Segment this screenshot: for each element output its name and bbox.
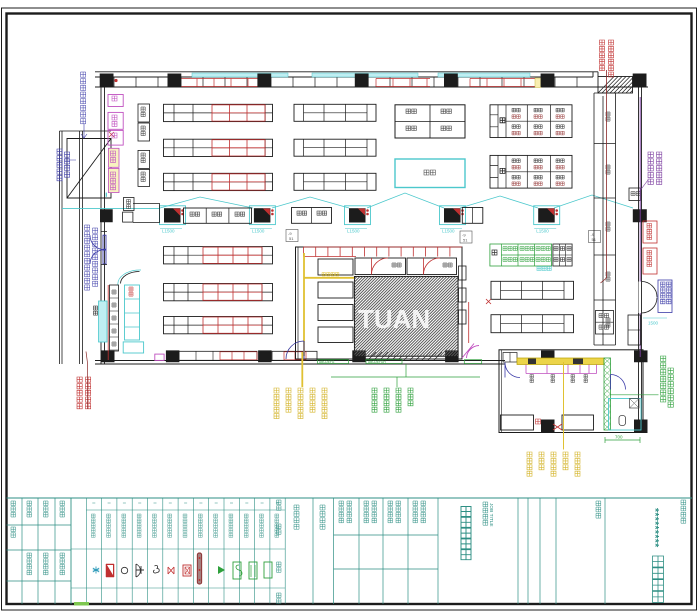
svg-text:*********: ********* — [649, 508, 661, 548]
svg-text:1500: 1500 — [648, 321, 659, 326]
svg-text:L1500: L1500 — [536, 229, 549, 234]
svg-text:TUAN: TUAN — [358, 304, 430, 334]
svg-text:51: 51 — [289, 236, 294, 241]
svg-text:L1500: L1500 — [347, 229, 360, 234]
svg-text:L1500: L1500 — [162, 229, 175, 234]
svg-text:ABCDEFG: ABCDEFG — [319, 360, 335, 364]
svg-text:JOB TITLE: JOB TITLE — [488, 503, 494, 527]
svg-text:L1500: L1500 — [442, 229, 455, 234]
svg-text:700: 700 — [615, 435, 623, 440]
svg-text:ABCDEFGH: ABCDEFGH — [368, 360, 386, 364]
svg-text:L1500: L1500 — [252, 229, 265, 234]
svg-text:51: 51 — [463, 238, 468, 243]
